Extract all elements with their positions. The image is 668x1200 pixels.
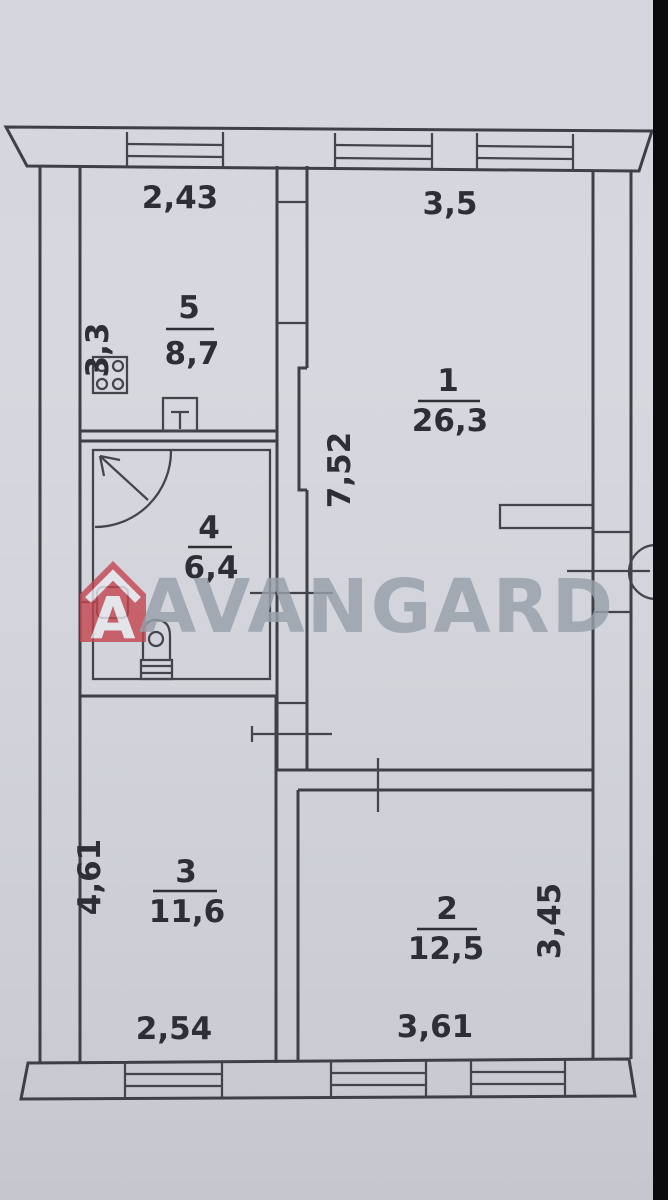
top-window-band-1 — [127, 132, 223, 169]
bottom-window-band-2 — [331, 1061, 426, 1097]
room-label-5: 5 8,7 — [165, 290, 220, 372]
watermark-brand-text: AVANGARD — [139, 564, 615, 650]
room2-area: 12,5 — [408, 931, 485, 967]
room-label-3: 3 11,6 — [149, 854, 226, 930]
dim-kitchen-width: 2,43 — [142, 180, 219, 216]
door-swing-arrow-icon — [100, 456, 148, 500]
avangard-logo-icon: A — [80, 561, 146, 652]
top-window-band-3 — [477, 133, 573, 170]
room5-number: 5 — [178, 290, 200, 326]
room-label-1: 1 26,3 — [412, 363, 489, 439]
floorplan-photo: 2,43 3,5 3,3 7,52 4,61 3,45 2,54 3,61 5 … — [0, 0, 668, 1200]
room4-number: 4 — [198, 510, 220, 546]
dim-living-width: 3,5 — [423, 186, 478, 222]
room5-area: 8,7 — [165, 336, 220, 372]
dim-room3-bottom-width: 2,54 — [136, 1011, 213, 1047]
dim-room2-bottom-width: 3,61 — [397, 1009, 474, 1045]
dim-room2-height: 3,45 — [532, 883, 568, 960]
dim-kitchen-height: 3,3 — [80, 323, 116, 378]
photo-edge-strip — [653, 0, 668, 1200]
watermark: A AVANGARD — [80, 561, 615, 652]
logo-letter: A — [91, 584, 136, 652]
bottom-window-band-1 — [125, 1062, 222, 1098]
dim-living-height: 7,52 — [322, 432, 358, 509]
floorplan-drawing: 2,43 3,5 3,3 7,52 4,61 3,45 2,54 3,61 5 … — [0, 0, 668, 1200]
top-wall — [6, 127, 652, 171]
room3-area: 11,6 — [149, 894, 226, 930]
room1-area: 26,3 — [412, 403, 489, 439]
corridor-wall-niche — [299, 368, 307, 490]
room2-number: 2 — [436, 891, 458, 927]
sink-icon — [163, 398, 197, 431]
bottom-window-band-3 — [471, 1060, 565, 1097]
bottom-wall — [21, 1059, 635, 1099]
room1-number: 1 — [437, 363, 459, 399]
top-window-band-2 — [335, 133, 432, 170]
room1-stub-wall — [500, 505, 593, 528]
dim-room3-height: 4,61 — [72, 839, 108, 916]
room3-number: 3 — [175, 854, 197, 890]
room-label-2: 2 12,5 — [408, 891, 485, 967]
